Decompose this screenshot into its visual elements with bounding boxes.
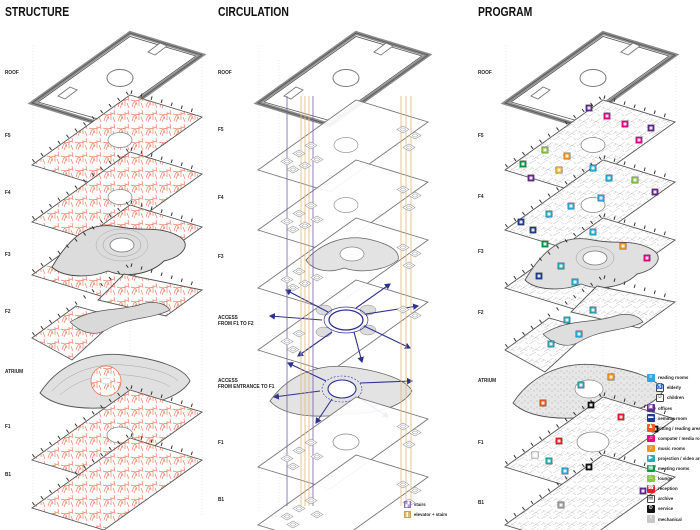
program-floor-f4: F4: [478, 194, 484, 200]
structure-floor-f5: F5: [5, 133, 11, 139]
program-floor-f1: F1: [478, 440, 484, 446]
legend-label: music rooms: [658, 446, 685, 451]
note-icon: ♪: [647, 445, 655, 453]
access-f1-to-f2-label: ACCESSFROM F1 TO F2: [218, 315, 254, 327]
circulation-floor-roof: ROOF: [218, 70, 232, 76]
legend-row-meeting-rooms: ▦ meeting rooms: [647, 465, 700, 473]
elevator-stairs-icon: [404, 511, 411, 518]
structure-floor-roof: ROOF: [5, 70, 19, 76]
child-icon: ☺: [656, 394, 664, 402]
fan-icon: ×: [647, 515, 655, 523]
circulation-floor-f4: F4: [218, 195, 224, 201]
legend-row-sitting-reading-area: ♟ sitting / reading area: [647, 424, 700, 432]
legend-label: sitting / reading area: [658, 426, 700, 431]
structure-title: STRUCTURE: [5, 4, 69, 19]
structure-floor-f2: F2: [5, 309, 11, 315]
legend-row-service: ⚙ service: [647, 505, 700, 513]
circulation-floor-f1: F1: [218, 440, 224, 446]
structure-diagram: [32, 33, 202, 530]
legend-row-computer-media-room: ♫ computer / media room: [647, 435, 700, 443]
legend-label: seminar room: [658, 416, 687, 421]
wheelchair-icon: ♿: [656, 384, 664, 392]
legend-row-reception: ☎ reception: [647, 485, 700, 493]
program-floor-f5: F5: [478, 133, 484, 139]
access-entrance-to-f1-label: ACCESSFROM ENTRANCE TO F1: [218, 378, 274, 390]
circulation-title: CIRCULATION: [218, 4, 289, 19]
person-icon: ♟: [647, 424, 655, 432]
legend-row-stairs: ▞ stairs: [404, 501, 449, 508]
structure-floor-f3: F3: [5, 252, 11, 258]
circulation-floor-b1: B1: [218, 497, 224, 503]
legend-row-offices: ▣ offices: [647, 404, 700, 412]
gear-icon: ⚙: [647, 505, 655, 513]
stairs-label: stairs: [414, 502, 426, 507]
headphones-icon: ♫: [647, 435, 655, 443]
stairs-icon: ▞: [404, 501, 411, 508]
desk-icon: ▣: [647, 404, 655, 412]
legend-row-music-rooms: ♪ music rooms: [647, 445, 700, 453]
box-icon: ▤: [647, 495, 655, 503]
legend-row-mechanical: × mechanical: [647, 515, 700, 523]
program-title: PROGRAM: [478, 4, 532, 19]
circulation-diagram: [258, 33, 428, 530]
legend-label: projection / video area: [658, 456, 700, 461]
phone-icon: ☎: [647, 485, 655, 493]
book-icon: ≡: [647, 374, 655, 382]
elevator-stairs-label: elevator + stairs: [414, 512, 447, 517]
structure-floor-atrium: ATRIUM: [5, 369, 23, 375]
legend-label: meeting rooms: [658, 466, 689, 471]
sofa-icon: ♨: [647, 475, 655, 483]
exploded-axon-diagram-sheet: STRUCTURE CIRCULATION PROGRAM ROOF F5 F4…: [0, 0, 700, 530]
program-legend: ≡ reading rooms ♿ elderly ☺ children ▣ o…: [647, 374, 700, 523]
legend-label: elderly: [667, 385, 681, 390]
circulation-floor-f3: F3: [218, 254, 224, 260]
circulation-floor-f5: F5: [218, 127, 224, 133]
legend-label: mechanical: [658, 517, 682, 522]
legend-label: computer / media room: [658, 436, 700, 441]
legend-row-children: ☺ children: [656, 394, 700, 402]
legend-row-lounge: ♨ lounge: [647, 475, 700, 483]
lectern-icon: ▬: [647, 414, 655, 422]
projector-icon: ▶: [647, 455, 655, 463]
legend-row-reading-rooms: ≡ reading rooms: [647, 374, 700, 382]
structure-floor-f4: F4: [5, 190, 11, 196]
legend-label: offices: [658, 406, 672, 411]
program-floor-atrium: ATRIUM: [478, 378, 496, 384]
legend-label: lounge: [658, 476, 672, 481]
legend-label: reception: [658, 486, 678, 491]
table-icon: ▦: [647, 465, 655, 473]
program-floor-f3: F3: [478, 249, 484, 255]
legend-label: service: [658, 506, 673, 511]
structure-floor-b1: B1: [5, 472, 11, 478]
legend-label: reading rooms: [658, 375, 688, 380]
diagram-artwork: [0, 0, 700, 530]
circulation-legend: ▞ stairs elevator + stairs: [404, 501, 449, 518]
legend-row-archive: ▤ archive: [647, 495, 700, 503]
legend-label: children: [667, 395, 684, 400]
program-floor-roof: ROOF: [478, 70, 492, 76]
legend-row-projection-video-area: ▶ projection / video area: [647, 455, 700, 463]
legend-row-elevator-stairs: elevator + stairs: [404, 511, 449, 518]
structure-floor-f1: F1: [5, 424, 11, 430]
legend-row-elderly: ♿ elderly: [656, 384, 700, 392]
structure-atrium-canopy: [40, 354, 190, 408]
program-floor-b1: B1: [478, 500, 484, 506]
legend-row-seminar-room: ▬ seminar room: [647, 414, 700, 422]
program-floor-f2: F2: [478, 310, 484, 316]
legend-label: archive: [658, 496, 673, 501]
